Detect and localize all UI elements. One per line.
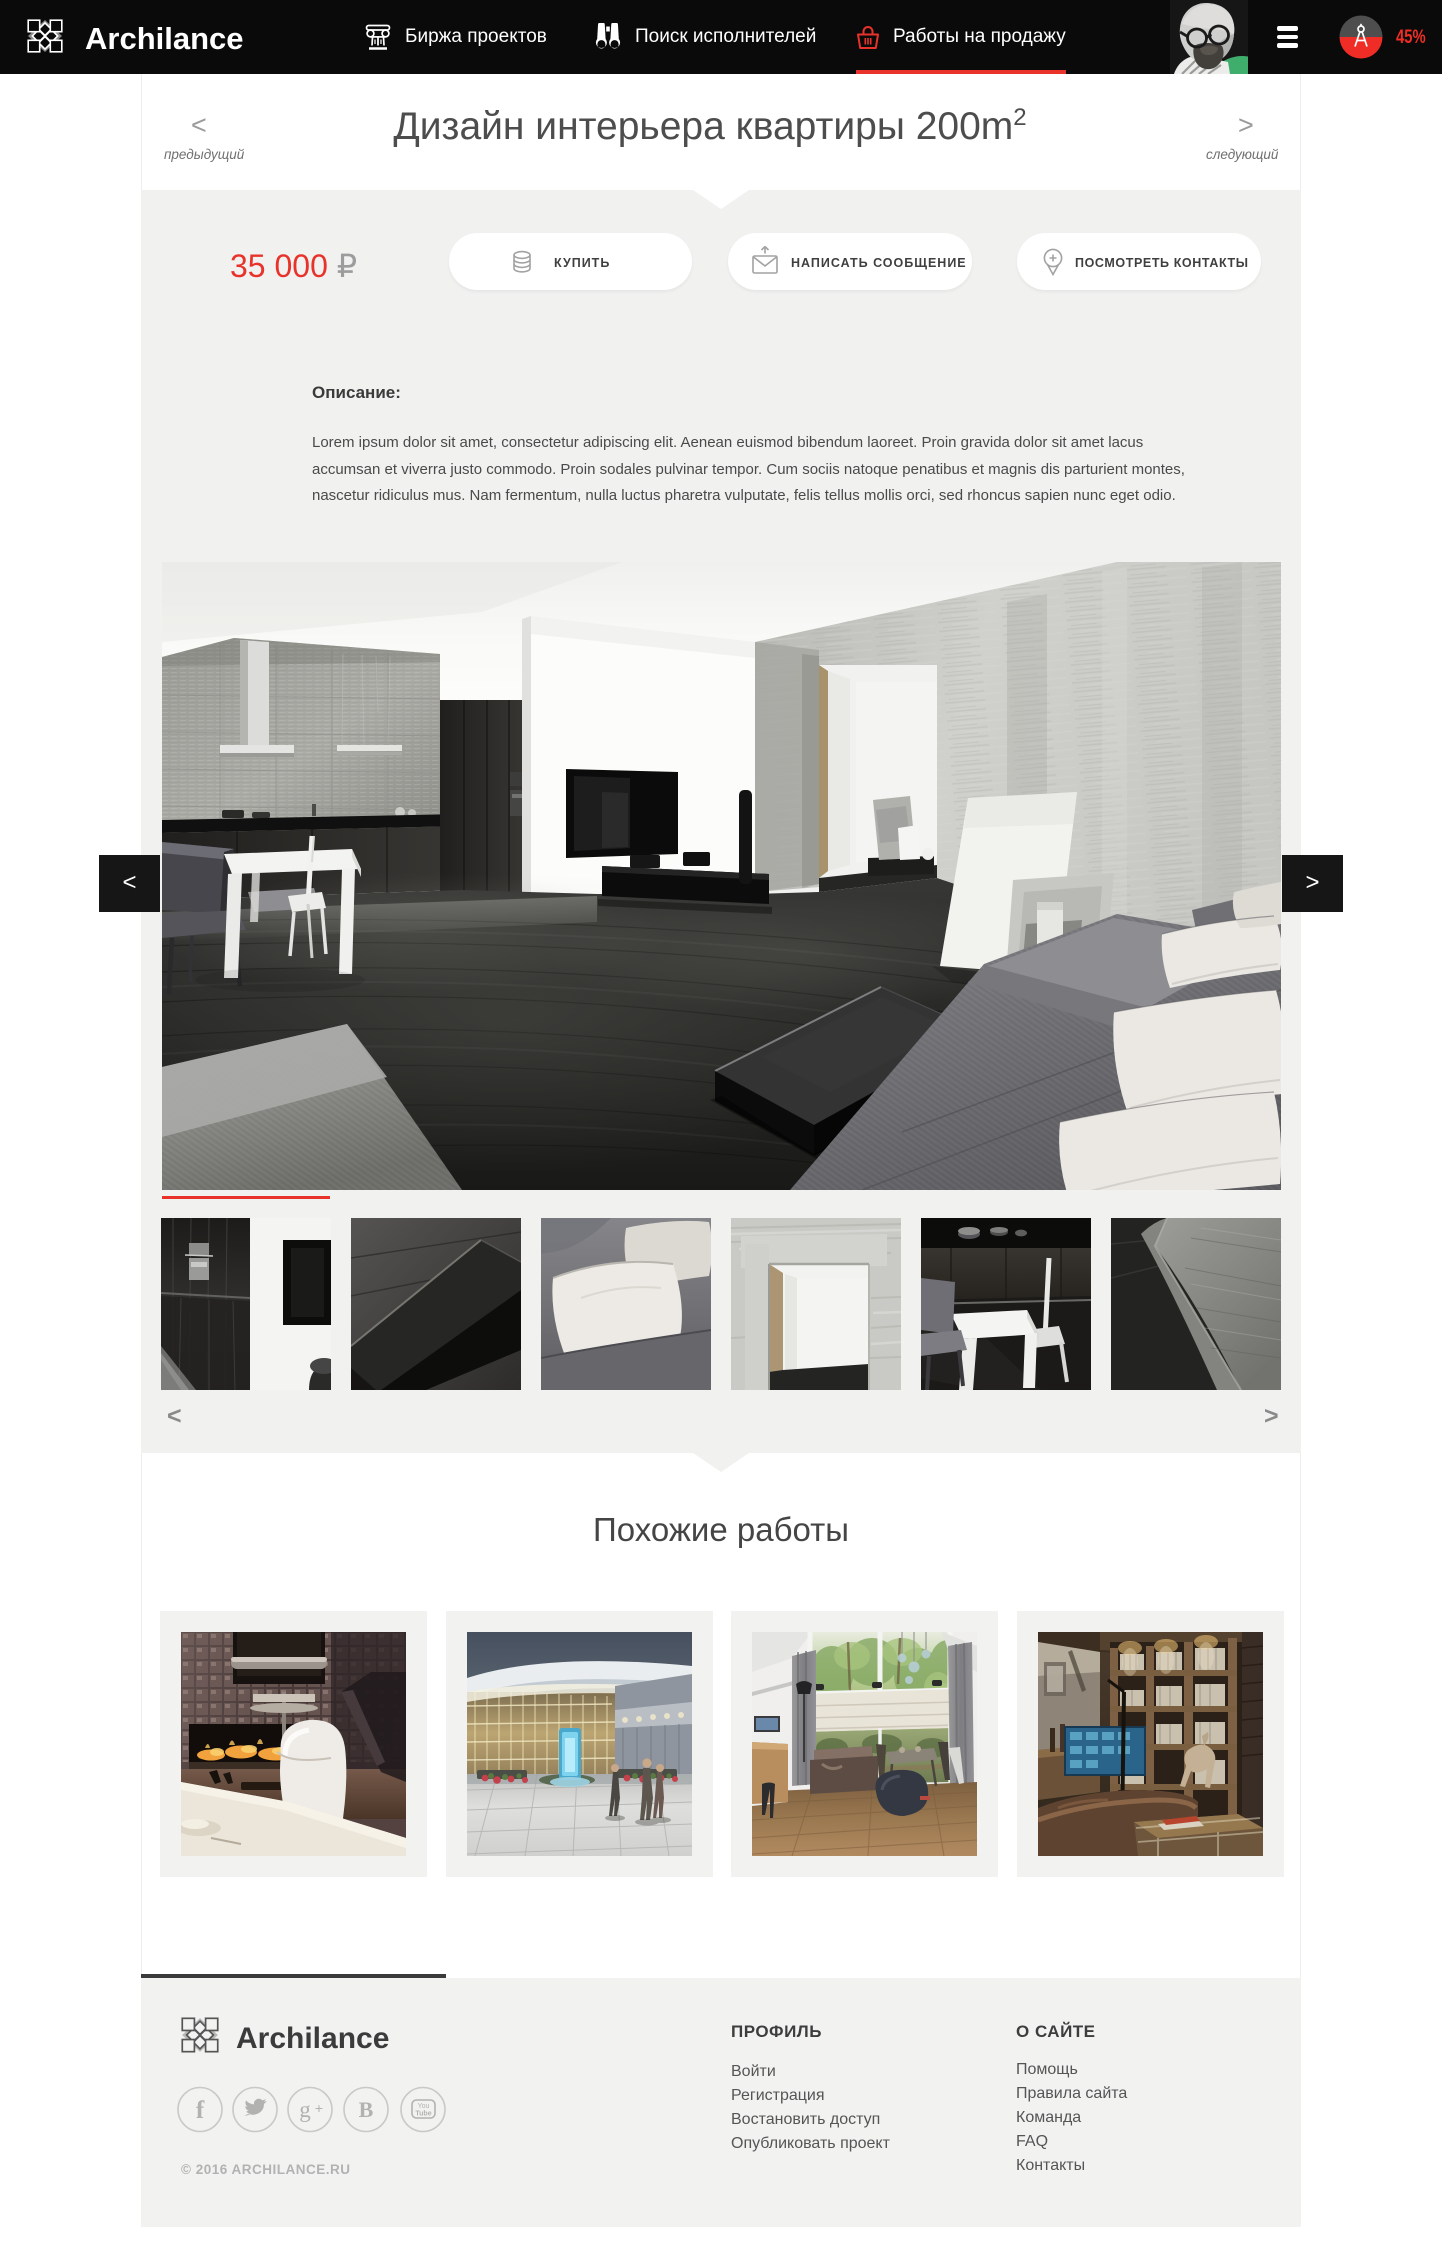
svg-text:B: B	[359, 2097, 374, 2122]
svg-text:+: +	[315, 2100, 323, 2116]
svg-text:f: f	[196, 2097, 205, 2124]
svg-text:You: You	[418, 2103, 430, 2110]
svg-text:g: g	[299, 2097, 311, 2122]
svg-text:Tube: Tube	[415, 2111, 431, 2118]
